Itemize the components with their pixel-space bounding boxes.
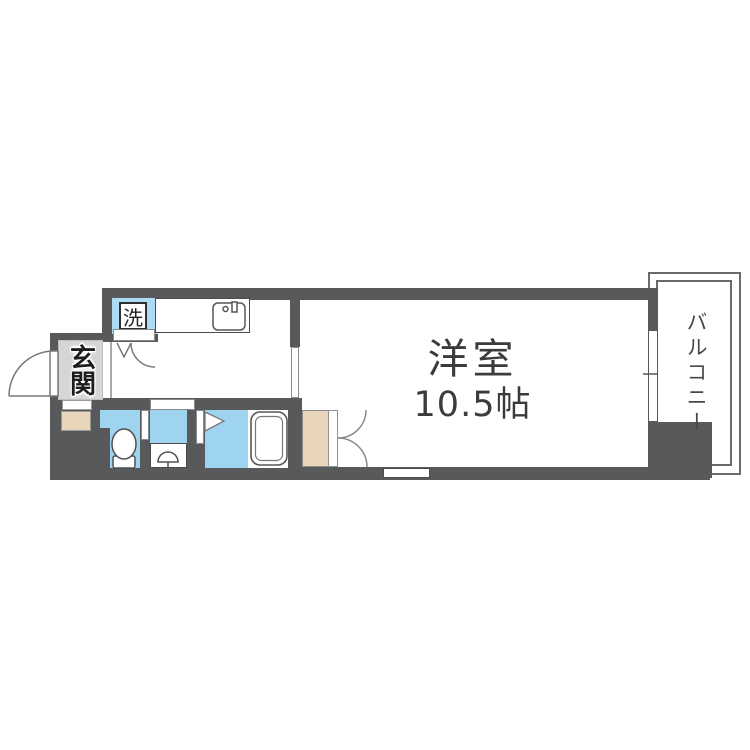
bath-door-frame: [196, 410, 204, 444]
closet-doors-icon: [338, 410, 367, 467]
toilet-floor-a: [100, 410, 140, 428]
balcony-label: バルコニー: [682, 283, 710, 463]
washer-folding-door: [113, 329, 155, 341]
closet: [302, 410, 330, 467]
hall-floor-line: [110, 342, 112, 398]
kitchen-main-sliding-door: [291, 347, 299, 398]
balcony-label-text: バルコニー: [681, 311, 711, 436]
wall-toilet-notch: [100, 428, 110, 468]
kitchen-counter: [155, 298, 250, 333]
closet-door-frame: [328, 410, 338, 467]
main-room-bottom-window: [383, 468, 430, 478]
floor-plan: 洗: [0, 0, 750, 750]
entrance-door-icon: [9, 351, 58, 396]
main-room-size: 10.5帖: [380, 380, 565, 422]
wall-balcony-upper: [648, 288, 658, 330]
tub-area-floor: [248, 410, 288, 468]
entrance-step: [62, 400, 92, 410]
main-room-label: 洋室: [380, 332, 565, 378]
wall-mid-horizontal: [90, 398, 302, 410]
main-room-size-text: 10.5帖: [414, 376, 532, 427]
wall-bottom: [50, 467, 710, 480]
washbasin-unit: [150, 443, 187, 468]
wall-entrance-jamb: [50, 342, 58, 352]
balcony-window: [648, 330, 658, 422]
washer-box: 洗: [119, 302, 147, 330]
toilet-door: [141, 410, 149, 440]
wall-kitchen-main-upper: [290, 298, 300, 347]
basin-room-floor: [150, 410, 187, 443]
bath-floor: [205, 410, 248, 468]
kitchen-door-icon: [117, 343, 155, 367]
toilet-floor-b: [110, 428, 140, 468]
entrance-shoebox: [61, 411, 91, 431]
washer-label: 洗: [123, 302, 143, 331]
entrance-label-text: 玄関: [68, 344, 94, 396]
basin-room-opening: [150, 399, 195, 410]
wall-bath-right: [288, 398, 302, 468]
fixtures-layer: [0, 0, 750, 750]
entrance-label: 玄関: [58, 340, 103, 400]
